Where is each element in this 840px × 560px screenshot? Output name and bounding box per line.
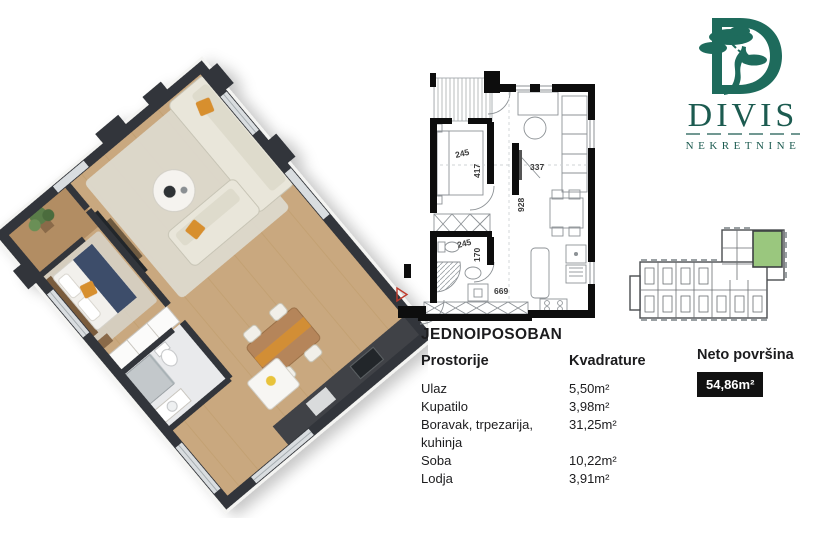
- brand-name: DIVIS: [688, 97, 799, 134]
- svg-text:669: 669: [494, 286, 508, 296]
- room-area: 5,50m²: [569, 380, 609, 398]
- apartment-info: JEDNOIPOSOBAN Prostorije Kvadrature Ulaz…: [421, 326, 686, 488]
- table-row: Boravak, trpezarija, kuhinja 31,25m²: [421, 416, 686, 452]
- cabinet-symbol: [518, 92, 558, 115]
- apartment-type-title: JEDNOIPOSOBAN: [421, 326, 686, 344]
- room-name: Lodja: [421, 470, 569, 488]
- bed-symbol: [437, 131, 483, 195]
- shower-symbol: [436, 262, 460, 292]
- real-estate-floorplan-sheet: 245 417 337 928 245 170 669 DIVIS NEKRET…: [0, 0, 840, 560]
- table-row: Kupatilo 3,98m²: [421, 398, 686, 416]
- toilet-symbol: [438, 242, 459, 252]
- terrace-hatch: [434, 78, 492, 121]
- kitchen-sink-symbol: [566, 265, 586, 283]
- svg-text:245: 245: [454, 147, 470, 160]
- table-row: Lodja 3,91m²: [421, 470, 686, 488]
- room-area: 10,22m²: [569, 452, 617, 470]
- sink-symbol: [465, 267, 481, 279]
- walls-2d: [398, 71, 595, 321]
- rooms-column-header: Prostorije: [421, 353, 569, 369]
- area-column-header: Kvadrature: [569, 353, 646, 369]
- net-area-block: Neto površina 54,86m²: [697, 347, 817, 397]
- rooms-table: Ulaz 5,50m² Kupatilo 3,98m² Boravak, trp…: [421, 380, 686, 488]
- room-name: Boravak, trpezarija, kuhinja: [421, 416, 569, 452]
- brand-logo: DIVIS NEKRETNINE: [668, 4, 818, 156]
- svg-text:245: 245: [456, 237, 472, 250]
- highlighted-unit: [753, 231, 782, 267]
- room-name: Soba: [421, 452, 569, 470]
- svg-text:337: 337: [530, 162, 544, 172]
- room-area: 3,91m²: [569, 470, 609, 488]
- room-area: 3,98m²: [569, 398, 609, 416]
- floorplan-2d: 245 417 337 928 245 170 669: [393, 50, 608, 328]
- net-area-label: Neto površina: [697, 347, 817, 363]
- svg-text:170: 170: [472, 248, 482, 262]
- table-row: Soba 10,22m²: [421, 452, 686, 470]
- brand-subtitle: NEKRETNINE: [686, 140, 801, 152]
- round-table-symbol: [524, 117, 546, 139]
- room-name: Ulaz: [421, 380, 569, 398]
- svg-text:417: 417: [472, 164, 482, 178]
- bonsai-tree-icon: [699, 18, 782, 95]
- entrance-arrow-icon: [397, 288, 407, 301]
- svg-text:928: 928: [516, 198, 526, 212]
- room-name: Kupatilo: [421, 398, 569, 416]
- table-row: Ulaz 5,50m²: [421, 380, 686, 398]
- counter-strip: [424, 302, 528, 314]
- washer-symbol: [468, 284, 488, 301]
- dining-table-symbol: [550, 190, 583, 236]
- table-header: Prostorije Kvadrature: [421, 353, 686, 369]
- building-key-plan: [625, 222, 795, 334]
- net-area-badge: 54,86m²: [697, 372, 763, 397]
- island-symbol: [531, 248, 549, 298]
- floorplan-3d: [0, 48, 428, 518]
- windows-2d: [516, 86, 594, 284]
- room-area: 31,25m²: [569, 416, 617, 452]
- sofa-symbol: [562, 96, 587, 192]
